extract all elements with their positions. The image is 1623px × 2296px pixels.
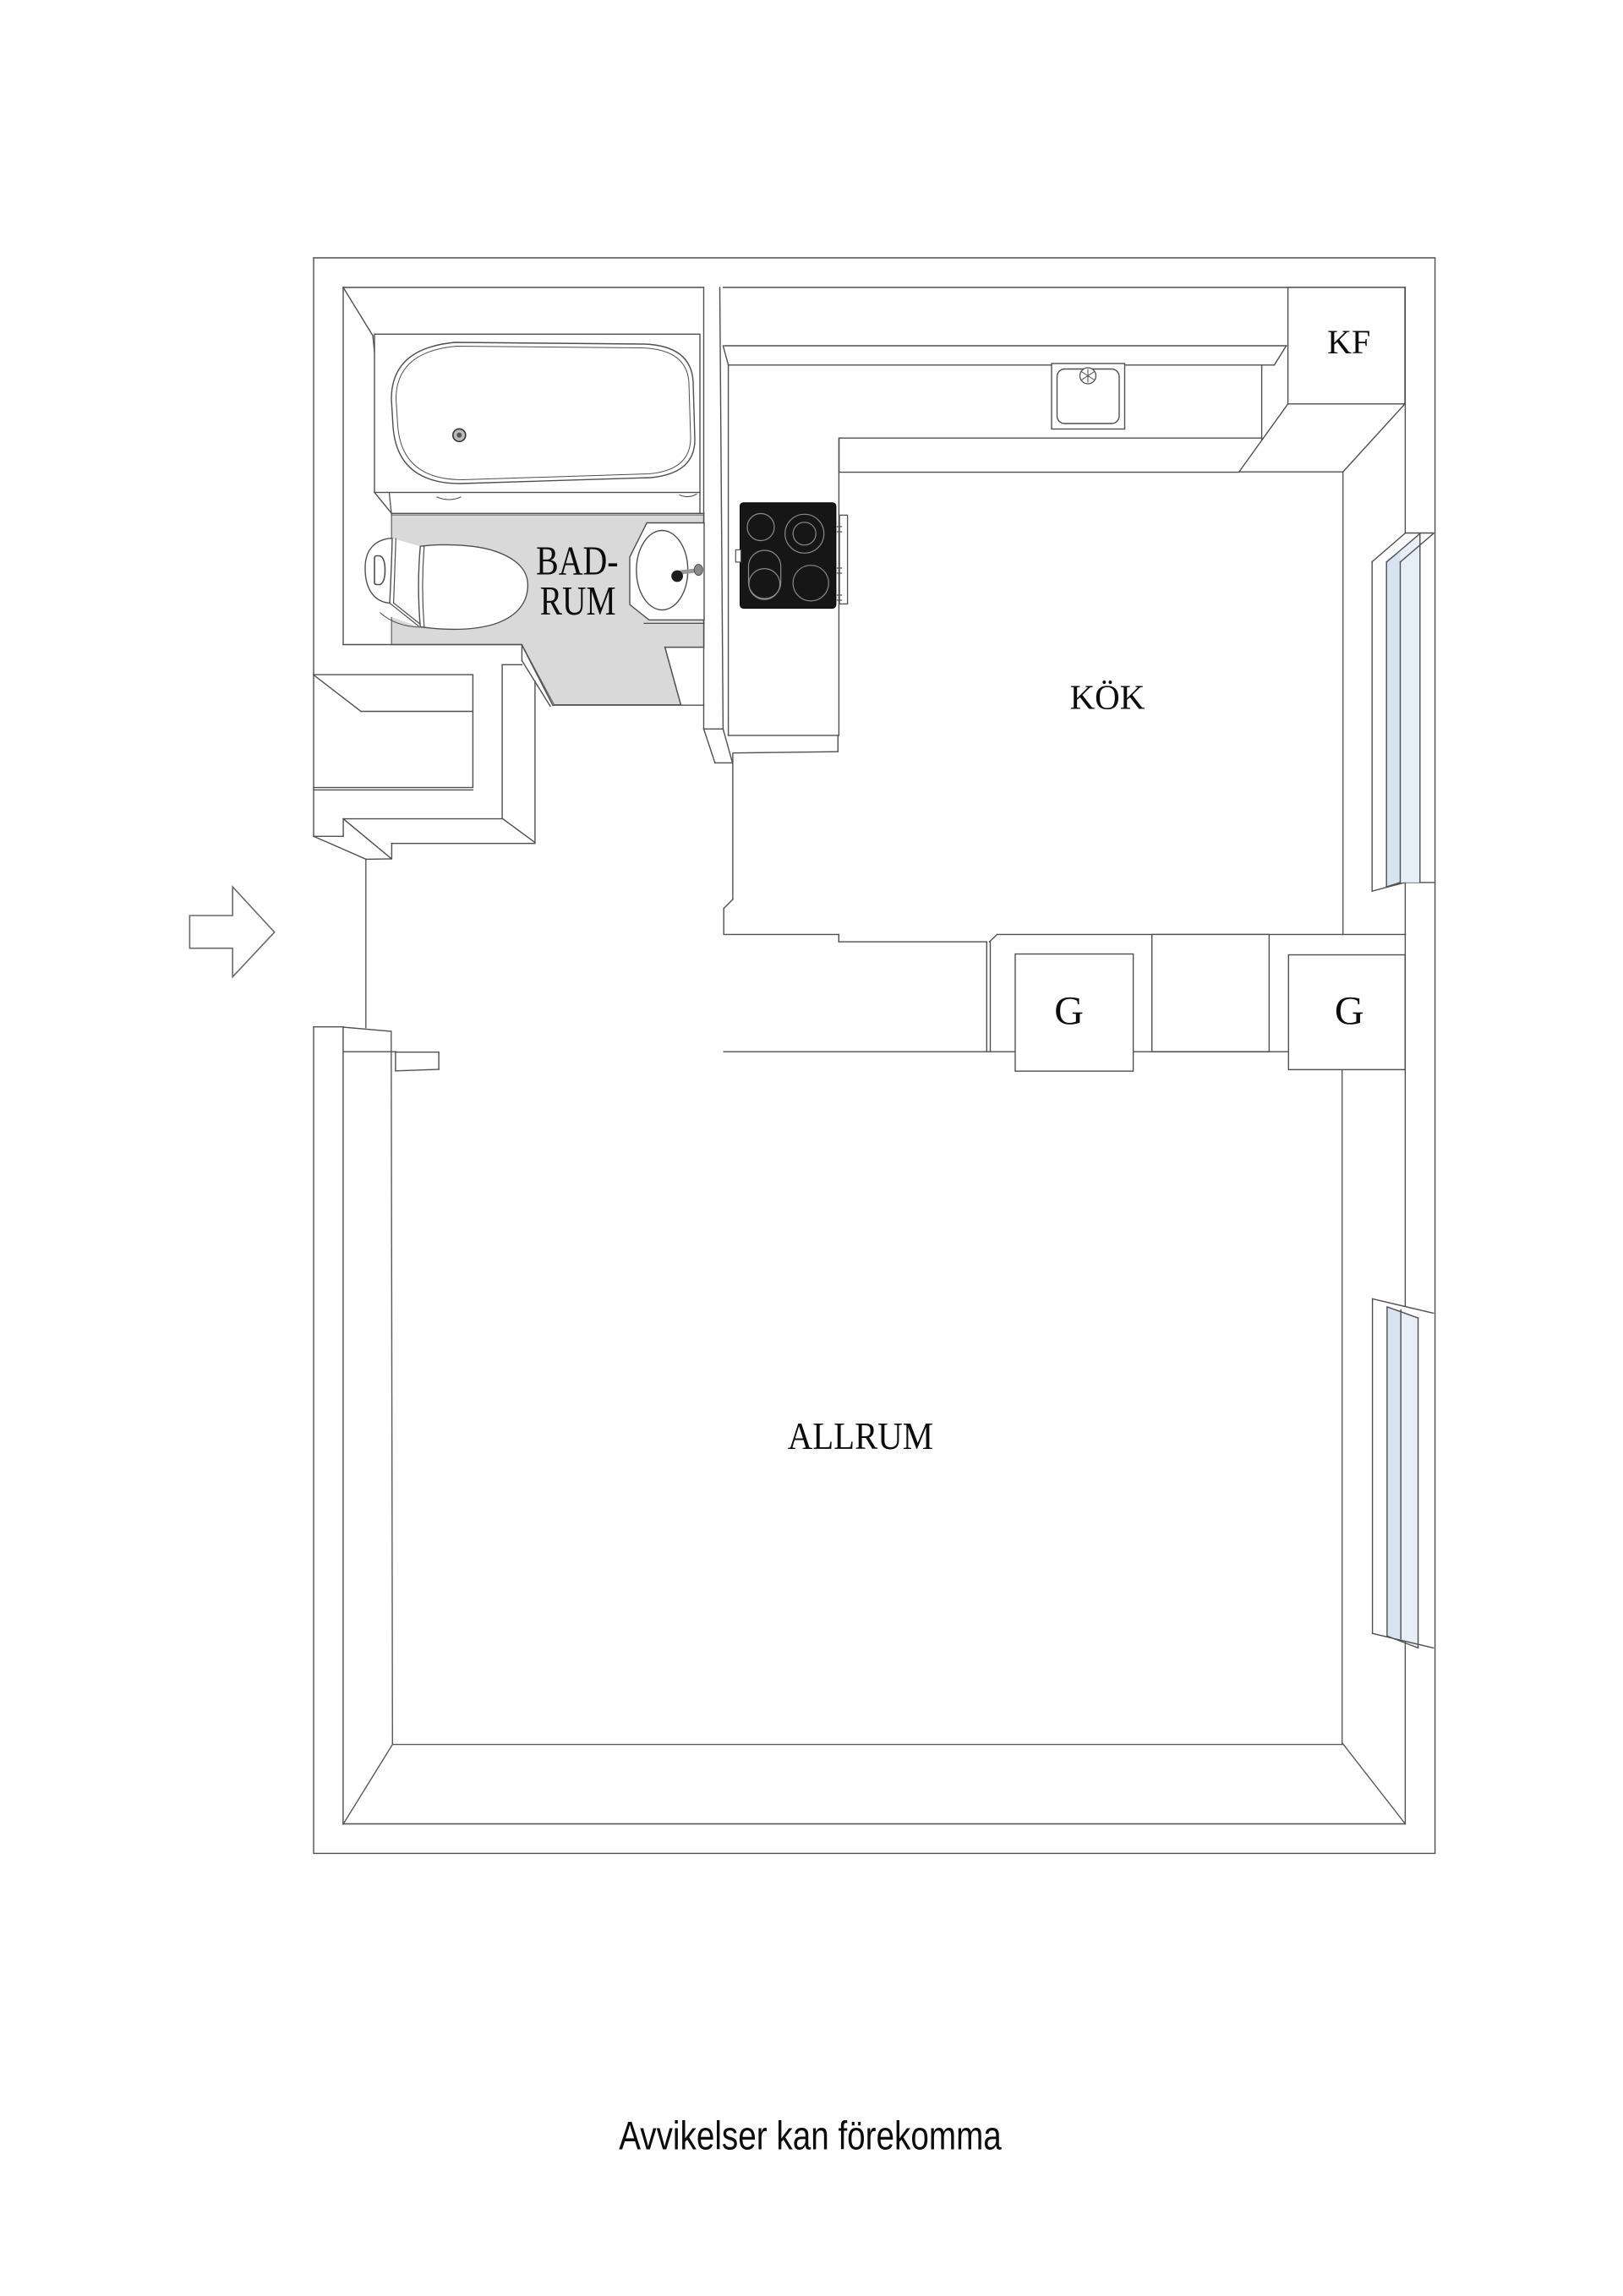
svg-text:G: G xyxy=(1054,989,1084,1034)
svg-text:G: G xyxy=(1335,989,1364,1034)
svg-text:KF: KF xyxy=(1327,323,1370,361)
svg-text:BAD-: BAD- xyxy=(536,537,619,583)
svg-text:ALLRUM: ALLRUM xyxy=(788,1414,933,1457)
svg-text:KÖK: KÖK xyxy=(1070,678,1145,717)
svg-text:Avvikelser kan förekomma: Avvikelser kan förekomma xyxy=(619,2113,1002,2158)
svg-text:RUM: RUM xyxy=(540,577,616,624)
